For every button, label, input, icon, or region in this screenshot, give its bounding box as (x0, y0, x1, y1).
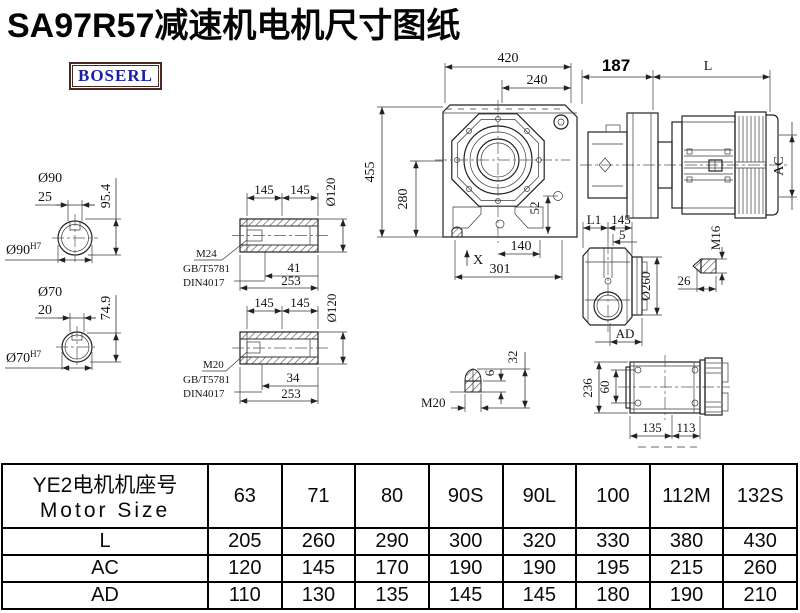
breather-plug-view: M20 6 32 (421, 351, 530, 413)
cell: 145 (503, 582, 577, 609)
cell: 205 (208, 528, 282, 555)
drawing-sheet: SA97R57减速机电机尺寸图纸 BOSERL Ø90 25 (0, 0, 800, 613)
cell: 260 (282, 528, 356, 555)
cell: 320 (503, 528, 577, 555)
cell: 170 (355, 555, 429, 582)
motor-size-table: YE2电机机座号 Motor Size 63 71 80 90S 90L 100… (1, 463, 798, 610)
hollow-shaft-view-m20: 145 145 Ø120 M20 GB/T5781 DIN4017 34 253 (183, 294, 347, 404)
dim-gearbox-301: 301 (490, 262, 511, 277)
dim-hs2-len: 253 (281, 386, 301, 401)
cell: 190 (650, 582, 724, 609)
dim-flange-m16: M16 (708, 225, 723, 250)
table-header-row: YE2电机机座号 Motor Size 63 71 80 90S 90L 100… (2, 464, 797, 528)
size-col: 112M (650, 464, 724, 528)
cell: 215 (650, 555, 724, 582)
cell: 180 (576, 582, 650, 609)
size-col: 80 (355, 464, 429, 528)
cell: 290 (355, 528, 429, 555)
cell: 190 (503, 555, 577, 582)
dim-flange-ad: AD (616, 326, 635, 341)
dim-shaft70-fit: Ø70H7 (6, 349, 42, 366)
dim-hs1-std2: DIN4017 (183, 277, 225, 289)
cell: 300 (429, 528, 503, 555)
cell: 110 (208, 582, 282, 609)
row-label: AD (2, 582, 208, 609)
motor-side-view: 187 L (580, 56, 797, 218)
gearbox-front-view: 420 240 455 280 52 140 301 X (363, 51, 577, 280)
cell: 190 (429, 555, 503, 582)
dim-motor-l: L (704, 59, 713, 74)
dim-hs1-dia: Ø120 (323, 178, 338, 207)
dim-flange-dia: Ø260 (638, 272, 653, 301)
dim-gearbox-240: 240 (527, 73, 548, 88)
shaft-end-view-70: Ø70 20 74.9 Ø70H7 (5, 285, 121, 370)
cell: 260 (723, 555, 797, 582)
dim-hs1-len: 253 (281, 273, 301, 288)
row-label: L (2, 528, 208, 555)
dim-motor-ac: AC (772, 156, 787, 175)
dim-shaft70-height: 74.9 (99, 296, 114, 321)
dim-flange-145: 145 (611, 212, 631, 227)
cell: 135 (355, 582, 429, 609)
dim-bottom-113: 113 (676, 420, 695, 435)
dim-gearbox-52: 52 (527, 202, 542, 215)
cell: 380 (650, 528, 724, 555)
cell: 145 (429, 582, 503, 609)
dim-gearbox-140: 140 (511, 239, 532, 254)
cell: 195 (576, 555, 650, 582)
dim-hs2-thread: M20 (203, 359, 224, 371)
dim-shaft70-key: 20 (38, 303, 52, 318)
cell: 210 (723, 582, 797, 609)
dim-gearbox-455: 455 (363, 162, 378, 183)
shaft-end-view-90: Ø90 25 95.4 Ø90H7 (5, 171, 121, 263)
dim-flange-26: 26 (678, 273, 692, 288)
size-col: 90L (503, 464, 577, 528)
cell: 120 (208, 555, 282, 582)
dim-shaft90-dia: Ø90 (38, 171, 62, 186)
dim-hs1-thread: M24 (196, 248, 217, 260)
cell: 430 (723, 528, 797, 555)
dim-hs2-145b: 145 (290, 295, 310, 310)
dim-hs2-145a: 145 (254, 295, 274, 310)
dim-gearbox-280: 280 (396, 189, 411, 210)
dim-shaft90-height: 95.4 (99, 184, 114, 209)
dim-hs1-145b: 145 (290, 182, 310, 197)
dim-motor-187: 187 (602, 56, 630, 75)
dim-hs2-dia: Ø120 (324, 294, 339, 323)
dim-bottom-60: 60 (597, 381, 612, 394)
table-row-l: L 205 260 290 300 320 330 380 430 (2, 528, 797, 555)
hollow-shaft-view-m24: 145 145 Ø120 M24 GB/T5781 DIN4017 41 253 (183, 178, 347, 291)
gearbox-bottom-view: 236 60 135 113 (580, 355, 730, 447)
dim-hs2-std2: DIN4017 (183, 388, 225, 400)
dim-shaft90-key: 25 (38, 190, 52, 205)
dim-hs2-depth: 34 (287, 370, 301, 385)
dim-bottom-135: 135 (642, 420, 662, 435)
dim-plug-m20: M20 (421, 395, 446, 410)
table-row-ac: AC 120 145 170 190 190 195 215 260 (2, 555, 797, 582)
row-label: AC (2, 555, 208, 582)
technical-drawing: Ø90 25 95.4 Ø90H7 Ø70 (0, 0, 800, 462)
size-col: 132S (723, 464, 797, 528)
table-header-motor-size: YE2电机机座号 Motor Size (2, 464, 208, 528)
table-header-en: Motor Size (3, 499, 207, 523)
dim-gearbox-x: X (473, 253, 483, 268)
size-col: 90S (429, 464, 503, 528)
flange-side-view: L1 145 5 Ø260 AD M16 26 (583, 212, 727, 346)
dim-flange-5: 5 (619, 227, 626, 242)
dim-bottom-236: 236 (580, 378, 595, 398)
size-col: 71 (282, 464, 356, 528)
dim-hs1-145a: 145 (254, 182, 274, 197)
dim-shaft90-fit: Ø90H7 (6, 241, 42, 258)
dim-shaft70-dia: Ø70 (38, 285, 62, 300)
cell: 330 (576, 528, 650, 555)
table-header-cn: YE2电机机座号 (3, 469, 207, 499)
cell: 130 (282, 582, 356, 609)
dim-gearbox-420: 420 (498, 51, 519, 66)
size-col: 63 (208, 464, 282, 528)
dim-hs1-std1: GB/T5781 (183, 263, 230, 275)
dim-flange-l1: L1 (587, 212, 601, 227)
dim-plug-6: 6 (482, 369, 497, 376)
size-col: 100 (576, 464, 650, 528)
dim-hs2-std1: GB/T5781 (183, 374, 230, 386)
table-row-ad: AD 110 130 135 145 145 180 190 210 (2, 582, 797, 609)
cell: 145 (282, 555, 356, 582)
dim-plug-32: 32 (505, 351, 520, 364)
